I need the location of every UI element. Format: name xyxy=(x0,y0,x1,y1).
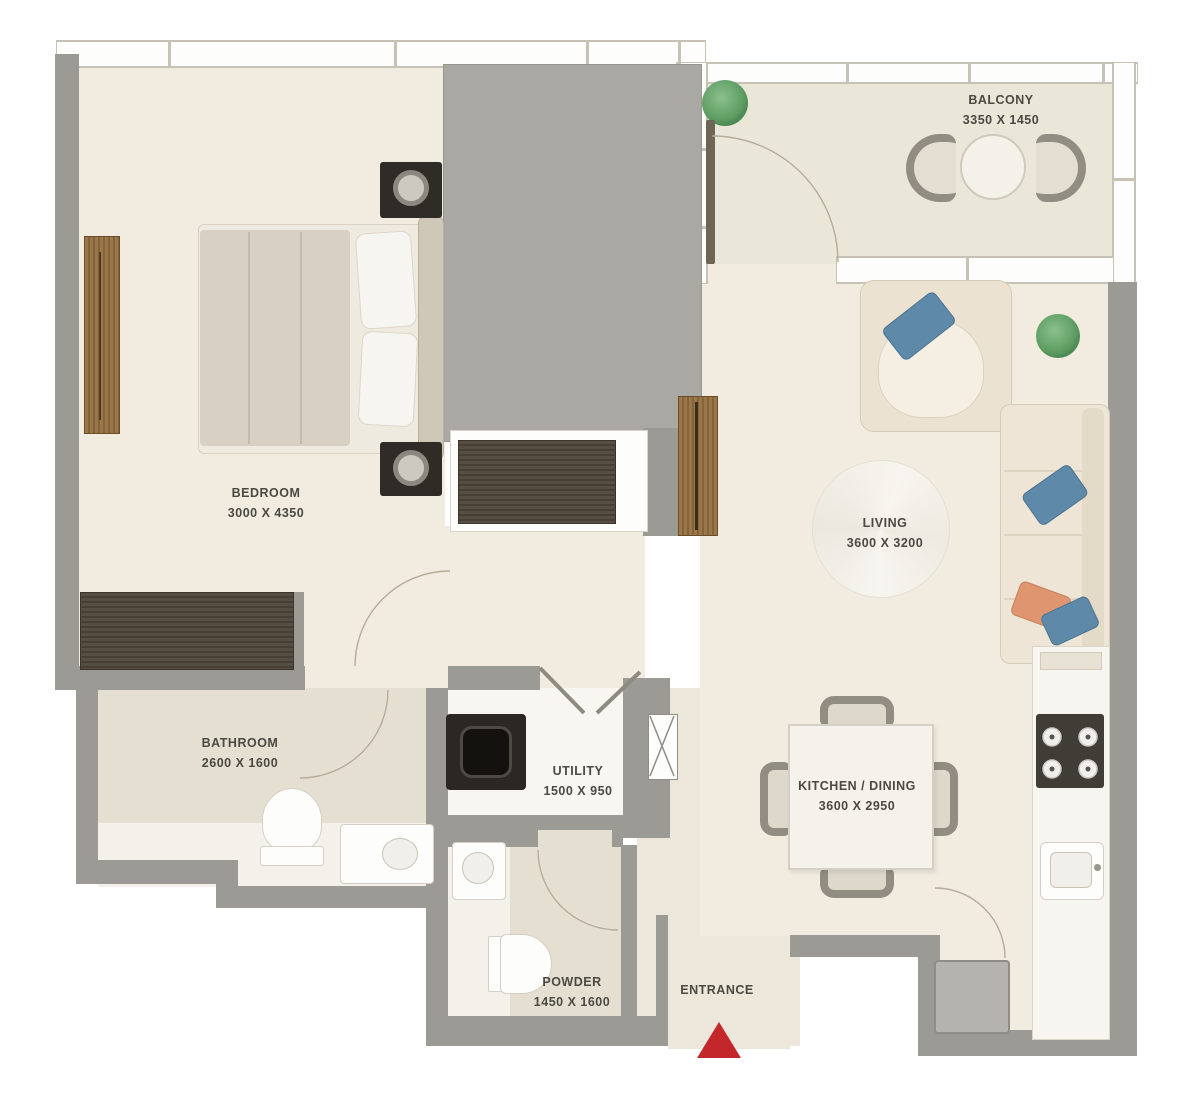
floor-plan: BEDROOM 3000 X 4350 BALCONY 3350 X 1450 … xyxy=(0,0,1183,1100)
dining-chair xyxy=(820,868,894,898)
wall-segment xyxy=(76,688,98,868)
powder-door-opening xyxy=(538,830,612,847)
balcony-top-glass xyxy=(700,62,1138,84)
room-label-balcony: BALCONY 3350 X 1450 xyxy=(963,90,1039,130)
service-shaft xyxy=(443,64,702,442)
blanket-fold xyxy=(300,232,302,444)
balcony-right-glass xyxy=(1112,62,1136,286)
room-label-bathroom: BATHROOM 2600 X 1600 xyxy=(202,733,279,773)
toilet xyxy=(262,788,322,852)
toilet-tank xyxy=(260,846,324,866)
wall-segment xyxy=(1108,282,1137,1056)
room-name: ENTRANCE xyxy=(680,980,753,1000)
window-mullion xyxy=(966,256,969,282)
stove xyxy=(1036,714,1104,788)
faucet xyxy=(1094,864,1101,871)
room-name: BEDROOM xyxy=(228,483,304,503)
room-label-kitchen-dining: KITCHEN / DINING 3600 X 2950 xyxy=(798,776,916,816)
room-dims: 1450 X 1600 xyxy=(534,992,610,1012)
wall-segment xyxy=(76,860,238,884)
window-mullion xyxy=(394,40,397,66)
room-name: BATHROOM xyxy=(202,733,279,753)
pillow xyxy=(355,230,418,330)
wall-segment xyxy=(448,666,540,690)
sink-basin xyxy=(1050,852,1092,888)
window-mullion xyxy=(1112,178,1134,181)
pillow xyxy=(358,331,419,428)
room-label-living: LIVING 3600 X 3200 xyxy=(847,513,923,553)
dining-chair xyxy=(760,762,790,836)
duct-shaft xyxy=(648,714,678,780)
room-dims: 3600 X 3200 xyxy=(847,533,923,553)
fridge xyxy=(934,960,1010,1034)
blanket-fold xyxy=(248,232,250,444)
plant xyxy=(1036,314,1080,358)
wardrobe-handle xyxy=(99,252,101,420)
tv-screen xyxy=(695,402,698,530)
room-label-entrance: ENTRANCE xyxy=(680,980,753,1000)
window-mullion xyxy=(968,62,971,82)
room-dims: 3350 X 1450 xyxy=(963,110,1039,130)
table-lamp xyxy=(393,170,429,206)
wall-segment xyxy=(426,1016,668,1046)
window-mullion xyxy=(586,40,589,66)
window-mullion xyxy=(678,40,681,66)
dresser xyxy=(80,592,294,670)
dining-chair xyxy=(820,696,894,726)
room-dims: 1500 X 950 xyxy=(544,781,613,801)
window-mullion xyxy=(846,62,849,82)
room-label-utility: UTILITY 1500 X 950 xyxy=(544,761,613,801)
room-name: KITCHEN / DINING xyxy=(798,776,916,796)
wall-segment xyxy=(656,915,668,1031)
tv-cabinet xyxy=(678,396,718,536)
sink-basin xyxy=(382,838,418,870)
wardrobe xyxy=(84,236,120,434)
sofa-seam xyxy=(1004,534,1082,536)
table-lamp xyxy=(393,450,429,486)
balcony-door-leaf xyxy=(706,120,715,264)
room-name: BALCONY xyxy=(963,90,1039,110)
room-name: POWDER xyxy=(534,972,610,992)
room-name: UTILITY xyxy=(544,761,613,781)
window-mullion xyxy=(1102,62,1105,82)
room-name: LIVING xyxy=(847,513,923,533)
room-dims: 2600 X 1600 xyxy=(202,753,279,773)
balcony-table xyxy=(960,134,1026,200)
washing-machine-door xyxy=(460,726,512,778)
bed-blanket xyxy=(200,230,350,446)
counter-appliance xyxy=(1040,652,1102,670)
window-mullion xyxy=(168,40,171,66)
room-dims: 3600 X 2950 xyxy=(798,796,916,816)
wall-segment xyxy=(216,886,446,908)
sink-basin xyxy=(462,852,494,884)
room-dims: 3000 X 4350 xyxy=(228,503,304,523)
entrance-marker xyxy=(697,1022,741,1058)
room-label-powder: POWDER 1450 X 1600 xyxy=(534,972,610,1012)
wall-segment xyxy=(621,845,637,1023)
sliding-closet xyxy=(458,440,616,524)
headboard xyxy=(418,214,444,462)
wall-segment xyxy=(55,54,79,690)
room-label-bedroom: BEDROOM 3000 X 4350 xyxy=(228,483,304,523)
